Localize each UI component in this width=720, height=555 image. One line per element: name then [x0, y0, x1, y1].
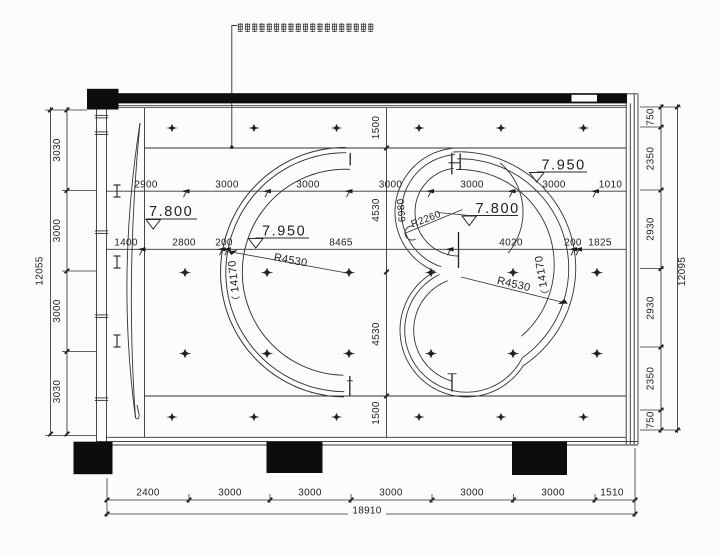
svg-text:12095: 12095	[677, 257, 688, 286]
svg-text:3000: 3000	[379, 180, 403, 191]
svg-text:3030: 3030	[52, 138, 63, 162]
svg-text:1500: 1500	[371, 401, 382, 425]
svg-text:3000: 3000	[218, 488, 242, 499]
svg-text:7.950: 7.950	[262, 224, 306, 240]
svg-text:2930: 2930	[646, 217, 657, 241]
svg-text:3000: 3000	[542, 180, 566, 191]
svg-text:2400: 2400	[136, 488, 160, 499]
svg-text:2800: 2800	[172, 238, 196, 249]
svg-text:200: 200	[215, 238, 233, 249]
svg-text:6980: 6980	[395, 198, 408, 222]
svg-text:3000: 3000	[460, 488, 484, 499]
svg-text:12055: 12055	[35, 256, 46, 285]
svg-text:1500: 1500	[371, 116, 382, 140]
svg-text:750: 750	[646, 411, 657, 429]
svg-text:3000: 3000	[52, 299, 63, 323]
svg-text:7.800: 7.800	[476, 201, 520, 217]
svg-text:3000: 3000	[298, 488, 322, 499]
svg-text:3000: 3000	[296, 180, 320, 191]
svg-text:1825: 1825	[588, 238, 612, 249]
svg-text:3000: 3000	[52, 219, 63, 243]
svg-text:4530: 4530	[371, 198, 382, 222]
svg-text:3000: 3000	[379, 488, 403, 499]
svg-text:7.950: 7.950	[542, 158, 586, 174]
svg-text:3030: 3030	[52, 380, 63, 404]
svg-text:3000: 3000	[460, 180, 484, 191]
svg-text:2930: 2930	[646, 296, 657, 320]
svg-text:3000: 3000	[541, 488, 565, 499]
svg-text:3000: 3000	[215, 180, 239, 191]
svg-text:7.800: 7.800	[149, 204, 193, 220]
svg-text:1400: 1400	[114, 238, 138, 249]
svg-text:8465: 8465	[329, 238, 353, 249]
svg-text:4530: 4530	[371, 322, 382, 346]
svg-text:1010: 1010	[599, 180, 623, 191]
svg-text:2900: 2900	[134, 180, 158, 191]
svg-text:1510: 1510	[600, 488, 624, 499]
svg-text:2350: 2350	[646, 147, 657, 171]
svg-text:2350: 2350	[646, 367, 657, 391]
svg-text:18910: 18910	[352, 506, 381, 517]
svg-text:4020: 4020	[499, 238, 523, 249]
svg-text:750: 750	[646, 108, 657, 126]
svg-text:200: 200	[564, 238, 582, 249]
